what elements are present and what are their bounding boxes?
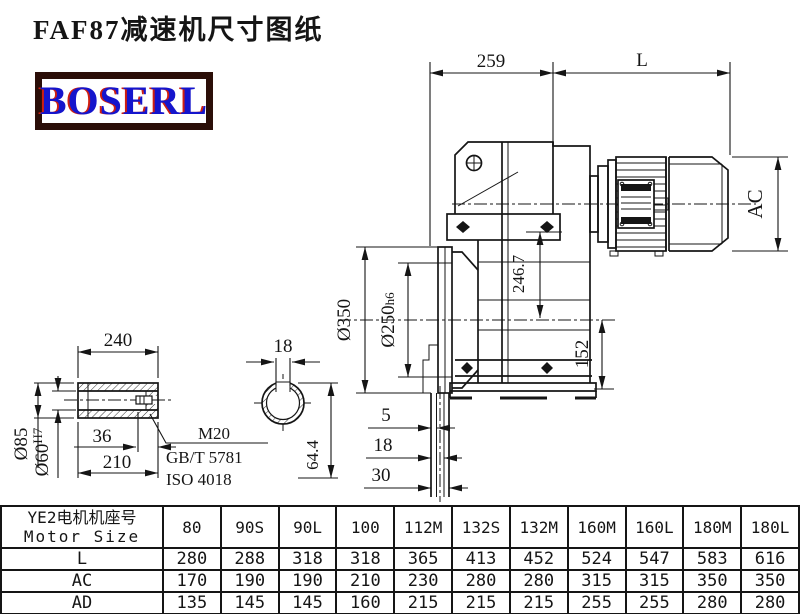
- table-cell: 210: [336, 570, 394, 592]
- motor: [590, 157, 728, 256]
- dim-350: Ø350: [334, 299, 355, 341]
- table-cell: 318: [279, 548, 337, 570]
- table-cell: 160: [336, 592, 394, 614]
- dim-5: 5: [381, 405, 391, 426]
- dim-250h6: Ø250h6: [378, 292, 399, 348]
- table-cell: 315: [626, 570, 684, 592]
- table-cell: 145: [221, 592, 279, 614]
- column-header: 132M: [510, 506, 568, 548]
- technical-drawing: 259 L AC 246.7 Ø350 Ø250h6: [0, 0, 800, 505]
- column-header: 80: [163, 506, 221, 548]
- table-cell: 413: [452, 548, 510, 570]
- dimensions: 259 L AC 246.7 Ø350 Ø250h6: [11, 50, 788, 489]
- table-cell: 190: [279, 570, 337, 592]
- table-cell: 280: [510, 570, 568, 592]
- row-label: L: [1, 548, 163, 570]
- dim-30: 30: [372, 465, 391, 486]
- table-cell: 365: [394, 548, 452, 570]
- table-header-motor-size: YE2电机机座号 Motor Size: [1, 506, 163, 548]
- table-header-row: YE2电机机座号 Motor Size 8090S90L100112M132S1…: [1, 506, 799, 548]
- dim-key-18: 18: [274, 336, 293, 357]
- table-cell: 350: [741, 570, 799, 592]
- drawing-sheet: FAF87减速机尺寸图纸 BOSERL: [0, 0, 800, 614]
- keyway-section-detail: [262, 379, 304, 424]
- dim-AC: AC: [743, 189, 767, 218]
- table-cell: 145: [279, 592, 337, 614]
- column-header: 100: [336, 506, 394, 548]
- standard-gb: GB/T 5781: [166, 448, 243, 467]
- bolt-icon: [541, 362, 553, 374]
- column-header: 160M: [568, 506, 626, 548]
- column-header: 90L: [279, 506, 337, 548]
- bolt-icon: [461, 362, 473, 374]
- output-flange: [423, 247, 478, 497]
- table-cell: 215: [452, 592, 510, 614]
- thread-callout: M20: [198, 424, 230, 443]
- table-cell: 524: [568, 548, 626, 570]
- table-cell: 135: [163, 592, 221, 614]
- bolt-icon: [540, 221, 554, 233]
- table-cell: 255: [568, 592, 626, 614]
- table-cell: 280: [683, 592, 741, 614]
- table-cell: 350: [683, 570, 741, 592]
- row-label: AD: [1, 592, 163, 614]
- table-cell: 452: [510, 548, 568, 570]
- table-cell: 190: [221, 570, 279, 592]
- dim-36: 36: [93, 426, 112, 447]
- motor-size-table: YE2电机机座号 Motor Size 8090S90L100112M132S1…: [0, 505, 800, 614]
- column-header: 132S: [452, 506, 510, 548]
- row-label: AC: [1, 570, 163, 592]
- table-cell: 280: [741, 592, 799, 614]
- table-cell: 288: [221, 548, 279, 570]
- dim-60H7: Ø60H7: [30, 427, 53, 476]
- table-cell: 315: [568, 570, 626, 592]
- dim-246-7: 246.7: [509, 254, 528, 293]
- dim-18: 18: [374, 435, 393, 456]
- dim-210: 210: [103, 452, 132, 473]
- table-row: L280288318318365413452524547583616: [1, 548, 799, 570]
- standard-iso: ISO 4018: [166, 470, 232, 489]
- column-header: 112M: [394, 506, 452, 548]
- table-cell: 255: [626, 592, 684, 614]
- table-cell: 230: [394, 570, 452, 592]
- dim-64-4: 64.4: [303, 440, 322, 470]
- column-header: 90S: [221, 506, 279, 548]
- column-header: 180L: [741, 506, 799, 548]
- column-header: 160L: [626, 506, 684, 548]
- column-header: 180M: [683, 506, 741, 548]
- bolt-icon: [456, 221, 470, 233]
- table-cell: 280: [452, 570, 510, 592]
- dim-85: Ø85: [11, 428, 32, 461]
- table-row: AD135145145160215215215255255280280: [1, 592, 799, 614]
- table-cell: 280: [163, 548, 221, 570]
- table-cell: 170: [163, 570, 221, 592]
- table-cell: 318: [336, 548, 394, 570]
- table-cell: 583: [683, 548, 741, 570]
- dim-240: 240: [104, 330, 133, 351]
- table-cell: 616: [741, 548, 799, 570]
- table-row: AC170190190210230280280315315350350: [1, 570, 799, 592]
- table-cell: 547: [626, 548, 684, 570]
- dim-259: 259: [477, 51, 506, 72]
- header-cn: YE2电机机座号: [2, 508, 162, 527]
- dim-152: 152: [572, 340, 593, 369]
- dim-L: L: [636, 50, 648, 71]
- table-cell: 215: [510, 592, 568, 614]
- header-en: Motor Size: [2, 527, 162, 546]
- table-cell: 215: [394, 592, 452, 614]
